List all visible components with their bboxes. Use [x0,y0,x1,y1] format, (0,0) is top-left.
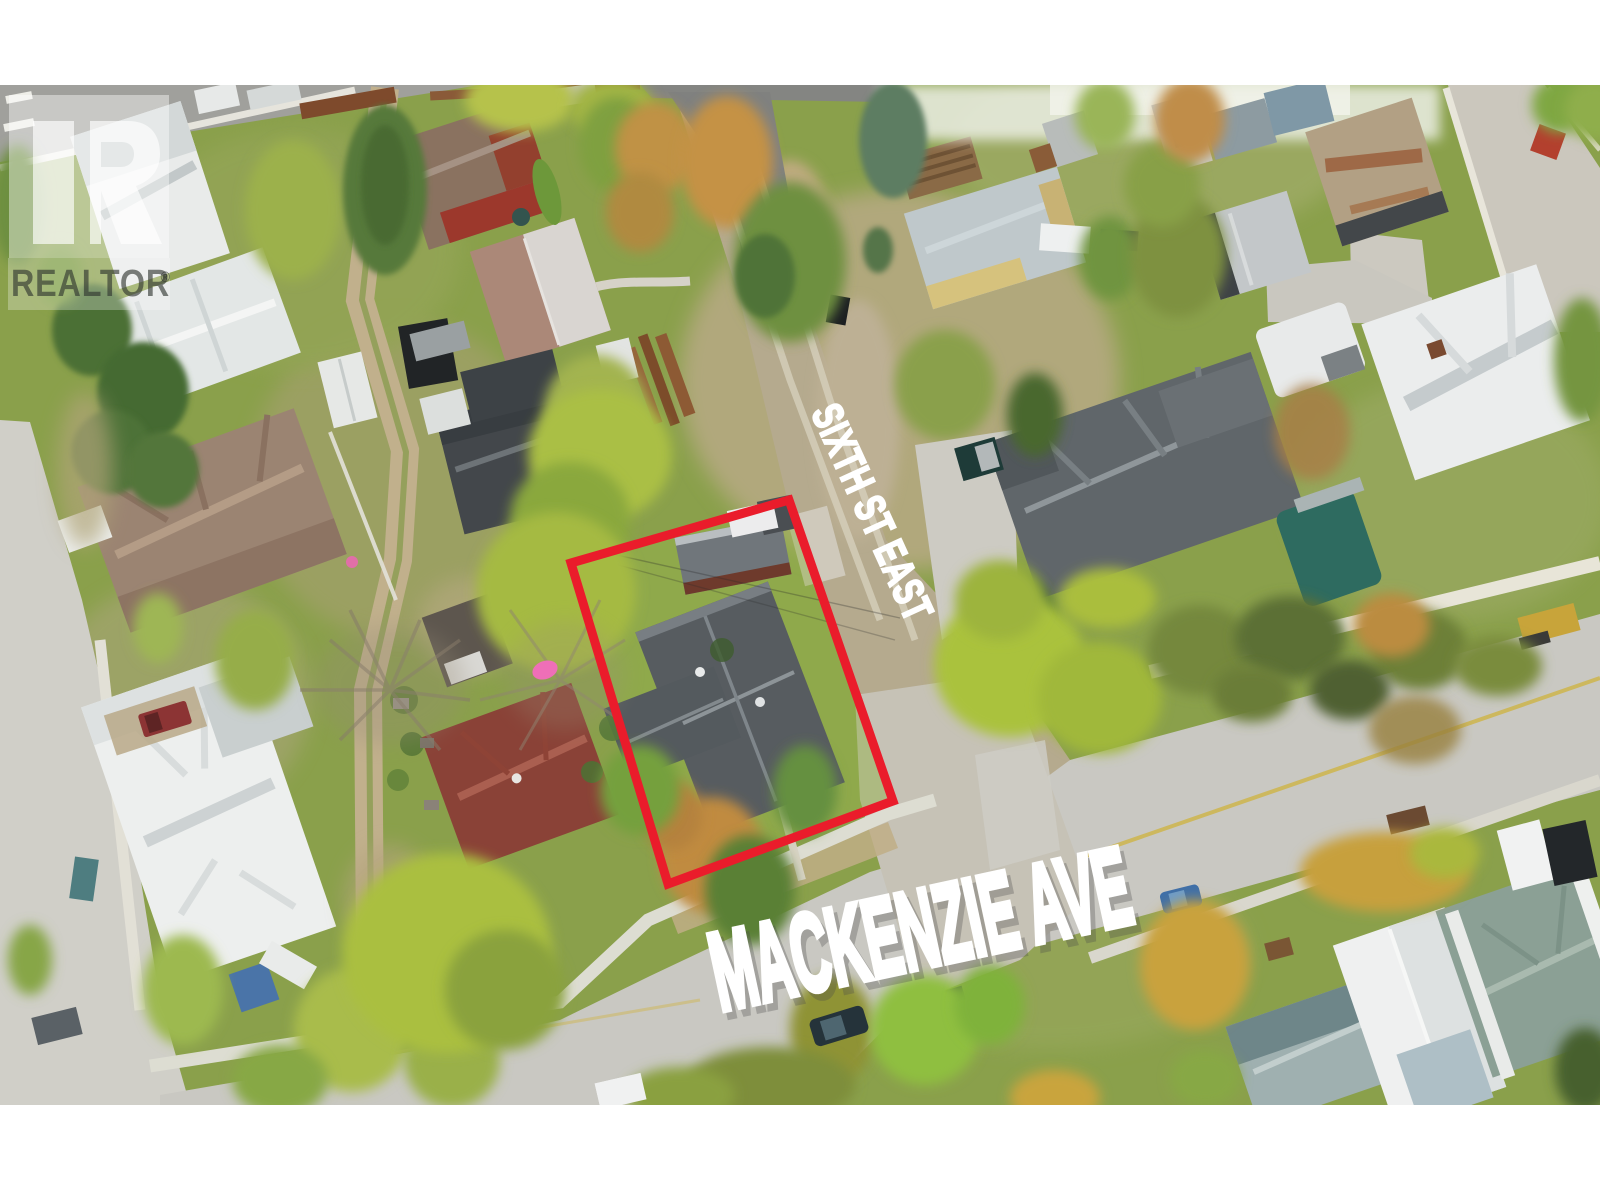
svg-text:REALTOR: REALTOR [11,263,170,305]
svg-text:®: ® [161,268,171,285]
